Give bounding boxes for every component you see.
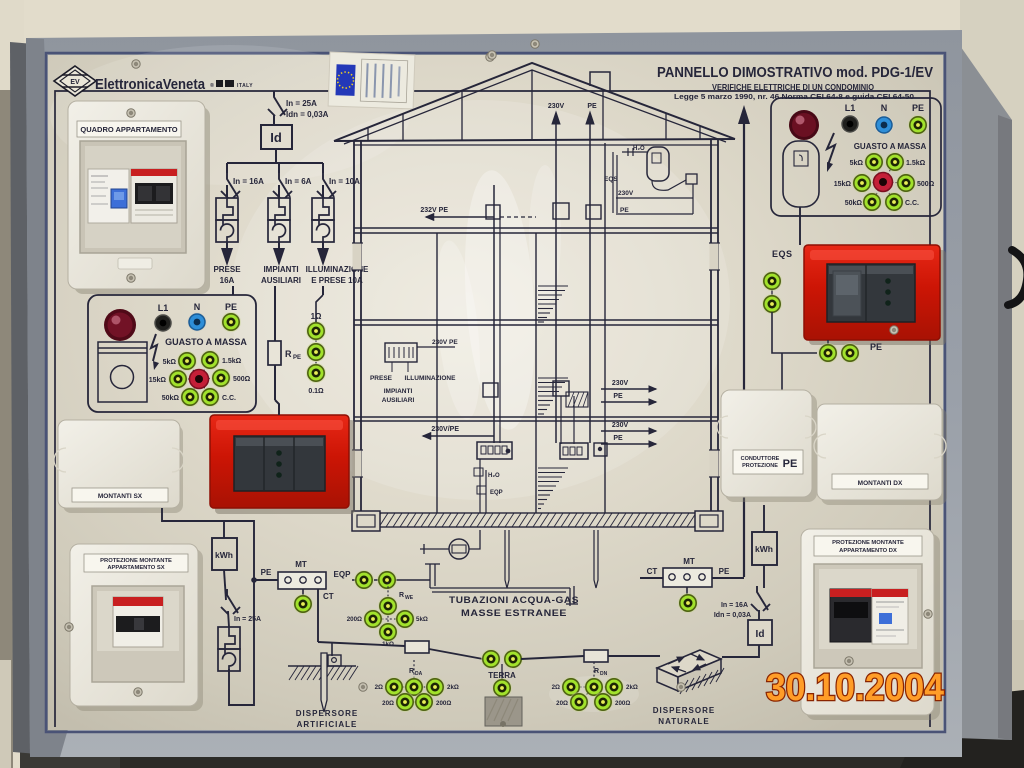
svg-text:Id: Id	[270, 130, 282, 145]
svg-text:kWh: kWh	[755, 544, 773, 554]
svg-text:E PRESE 10A: E PRESE 10A	[311, 276, 363, 285]
svg-text:30.10.2004: 30.10.2004	[766, 667, 944, 709]
svg-text:EQP: EQP	[490, 490, 503, 496]
svg-text:Legge 5 marzo 1990, nr. 46: Legge 5 marzo 1990, nr. 46 Norma CEI 64-…	[674, 92, 914, 101]
svg-text:In = 25A: In = 25A	[286, 99, 317, 108]
svg-text:5kΩ: 5kΩ	[850, 160, 864, 167]
svg-text:PE: PE	[870, 342, 882, 352]
svg-text:kWh: kWh	[215, 550, 233, 560]
svg-text:ElettronicaVeneta: ElettronicaVeneta	[95, 76, 206, 93]
svg-text:R: R	[409, 668, 414, 675]
svg-text:1kΩ: 1kΩ	[382, 641, 394, 648]
svg-text:QUADRO APPARTAMENTO: QUADRO APPARTAMENTO	[80, 125, 177, 134]
svg-text:500Ω: 500Ω	[233, 376, 251, 383]
svg-text:Id: Id	[756, 629, 765, 640]
svg-text:15kΩ: 15kΩ	[834, 181, 852, 188]
svg-text:DA: DA	[415, 671, 423, 677]
svg-text:230V: 230V	[618, 190, 634, 197]
svg-text:Idn = 0,03A: Idn = 0,03A	[714, 612, 751, 619]
svg-text:AUSILIARI: AUSILIARI	[382, 397, 415, 404]
svg-text:50kΩ: 50kΩ	[162, 395, 180, 402]
svg-text:IMPIANTI: IMPIANTI	[384, 388, 413, 395]
svg-text:DISPERSORE: DISPERSORE	[296, 709, 358, 718]
svg-text:DN: DN	[600, 671, 608, 677]
svg-text:CT: CT	[323, 592, 334, 601]
svg-text:15kΩ: 15kΩ	[149, 377, 167, 384]
svg-text:PROTEZIONE MONTANTE: PROTEZIONE MONTANTE	[100, 558, 172, 564]
svg-text:5kΩ: 5kΩ	[416, 616, 428, 623]
svg-text:1.5kΩ: 1.5kΩ	[906, 160, 926, 167]
svg-text:CT: CT	[647, 567, 658, 576]
svg-text:2kΩ: 2kΩ	[447, 684, 459, 691]
svg-text:In = 16A: In = 16A	[233, 177, 264, 186]
svg-text:NATURALE: NATURALE	[658, 717, 709, 726]
svg-text:ITALY: ITALY	[237, 83, 253, 89]
svg-text:230V PE: 230V PE	[432, 339, 458, 346]
svg-text:APPARTAMENTO SX: APPARTAMENTO SX	[107, 565, 164, 571]
svg-text:GUASTO A MASSA: GUASTO A MASSA	[165, 337, 247, 347]
svg-text:Idn = 0,03A: Idn = 0,03A	[286, 110, 329, 119]
svg-text:ILLUMINAZIONE: ILLUMINAZIONE	[405, 375, 457, 382]
svg-text:MONTANTI SX: MONTANTI SX	[98, 493, 143, 500]
svg-text:AUSILIARI: AUSILIARI	[261, 276, 301, 285]
svg-text:20Ω: 20Ω	[382, 700, 394, 707]
svg-text:PE: PE	[225, 302, 237, 312]
svg-text:2Ω: 2Ω	[552, 684, 560, 691]
svg-text:PRESE: PRESE	[213, 265, 241, 274]
svg-text:1.5kΩ: 1.5kΩ	[222, 358, 242, 365]
svg-text:In = 25A: In = 25A	[234, 616, 261, 623]
svg-text:PROTEZIONE MONTANTE: PROTEZIONE MONTANTE	[832, 540, 904, 546]
svg-text:EQS: EQS	[604, 176, 618, 183]
svg-text:0.1Ω: 0.1Ω	[308, 388, 324, 395]
svg-text:200Ω: 200Ω	[615, 700, 630, 707]
svg-text:GUASTO A MASSA: GUASTO A MASSA	[854, 142, 927, 151]
svg-text:APPARTAMENTO DX: APPARTAMENTO DX	[839, 548, 897, 554]
svg-text:PE: PE	[719, 567, 730, 576]
svg-text:N: N	[194, 302, 201, 312]
svg-text:ARTIFICIALE: ARTIFICIALE	[297, 720, 358, 729]
svg-text:VERIFICHE ELETTRICHE DI UN CON: VERIFICHE ELETTRICHE DI UN CONDOMINIO	[712, 82, 874, 92]
svg-text:CONDUTTORE: CONDUTTORE	[741, 456, 780, 462]
svg-text:MT: MT	[683, 557, 695, 566]
svg-text:200Ω: 200Ω	[436, 700, 451, 707]
svg-text:MT: MT	[295, 560, 307, 569]
svg-text:PRESE: PRESE	[370, 375, 393, 382]
svg-text:EQP: EQP	[334, 570, 352, 579]
svg-text:IMPIANTI: IMPIANTI	[263, 265, 298, 274]
svg-text:H₂O: H₂O	[633, 146, 645, 152]
svg-text:R: R	[399, 592, 404, 599]
svg-text:230V/PE: 230V/PE	[431, 426, 459, 433]
svg-text:®: ®	[210, 82, 214, 89]
svg-text:PE: PE	[613, 435, 623, 442]
svg-text:MASSE ESTRANEE: MASSE ESTRANEE	[461, 608, 567, 618]
svg-text:C.C.: C.C.	[905, 200, 919, 207]
svg-text:PE: PE	[783, 458, 798, 470]
svg-text:230V: 230V	[548, 103, 565, 110]
svg-text:PE: PE	[293, 355, 301, 361]
svg-text:PROTEZIONE: PROTEZIONE	[742, 463, 778, 469]
svg-text:PANNELLO DIMOSTRATIVO mod.: PANNELLO DIMOSTRATIVO mod. PDG-1/EV	[657, 65, 933, 81]
svg-text:200Ω: 200Ω	[347, 616, 362, 623]
svg-text:DISPERSORE: DISPERSORE	[653, 706, 715, 715]
svg-text:In = 6A: In = 6A	[285, 177, 312, 186]
svg-text:L1: L1	[158, 303, 169, 313]
svg-text:C.C.: C.C.	[222, 395, 236, 402]
svg-text:R: R	[594, 668, 599, 675]
svg-text:EV: EV	[70, 79, 80, 86]
svg-text:16A: 16A	[220, 276, 235, 285]
svg-text:PE: PE	[613, 393, 623, 400]
svg-text:230V: 230V	[612, 380, 629, 387]
svg-text:EQS: EQS	[772, 249, 793, 259]
svg-text:230V: 230V	[612, 422, 629, 429]
svg-text:N: N	[881, 103, 888, 113]
svg-text:MONTANTI DX: MONTANTI DX	[858, 480, 903, 487]
svg-text:PE: PE	[587, 103, 597, 110]
svg-text:5kΩ: 5kΩ	[163, 359, 177, 366]
svg-text:2Ω: 2Ω	[375, 684, 383, 691]
svg-text:WE: WE	[405, 595, 414, 601]
svg-text:TUBAZIONI ACQUA-GAS: TUBAZIONI ACQUA-GAS	[449, 595, 579, 605]
svg-text:50kΩ: 50kΩ	[845, 200, 863, 207]
svg-text:L1: L1	[845, 103, 856, 113]
svg-text:500Ω: 500Ω	[917, 181, 935, 188]
svg-text:In = 16A: In = 16A	[721, 602, 748, 609]
svg-text:PE: PE	[620, 207, 629, 214]
svg-text:2kΩ: 2kΩ	[626, 684, 638, 691]
svg-text:232V PE: 232V PE	[420, 207, 448, 214]
svg-text:H₂O: H₂O	[488, 473, 500, 479]
svg-text:PE: PE	[261, 568, 272, 577]
svg-text:20Ω: 20Ω	[556, 700, 568, 707]
svg-text:R: R	[285, 349, 292, 359]
svg-text:In = 10A: In = 10A	[329, 177, 360, 186]
svg-text:PE: PE	[912, 103, 924, 113]
